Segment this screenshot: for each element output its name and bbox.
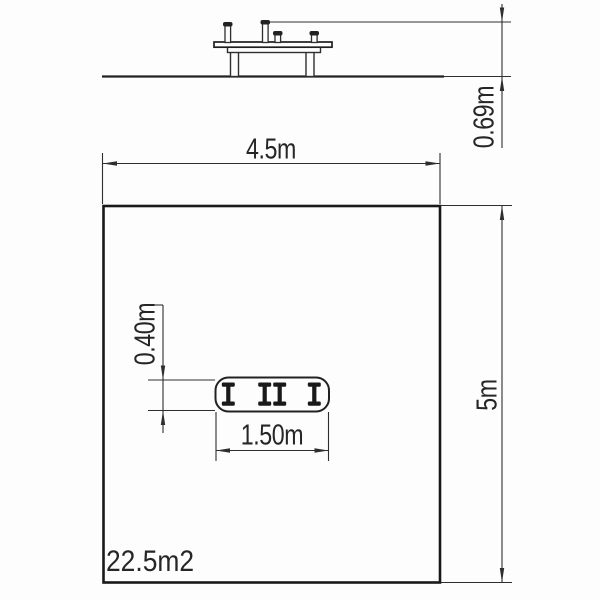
arrow-down-icon [500, 8, 504, 23]
plan-view [103, 153, 513, 583]
area-label: 22.5m2 [106, 547, 194, 577]
footprint-width-dimension-label: 0.40m [132, 303, 161, 365]
arrow-right-icon [315, 448, 329, 452]
post-1-cap [223, 22, 233, 27]
post-4-cap [310, 31, 320, 36]
arrow-right-icon [426, 161, 441, 165]
width-dimension-label: 4.5m [246, 136, 296, 165]
drawing-linework [0, 0, 600, 600]
elevation-view [102, 4, 511, 148]
post-2-cap [261, 20, 271, 25]
right-leg [306, 51, 314, 77]
arrow-left-icon [216, 448, 230, 452]
technical-drawing: 0.69m 4.5m 0.40m 1.50m 5m 22.5m2 [0, 0, 600, 600]
left-leg [231, 51, 239, 77]
arrow-down-icon [500, 568, 504, 583]
arrow-down-icon [161, 366, 165, 381]
post-1 [225, 26, 231, 43]
footprint-length-dimension-label: 1.50m [241, 422, 303, 451]
arrow-left-icon [103, 161, 118, 165]
post-2 [263, 24, 269, 43]
post-4 [312, 35, 318, 43]
post-3 [275, 35, 281, 43]
arrow-up-icon [500, 206, 504, 221]
post-3-cap [273, 31, 283, 36]
arrow-up-icon [161, 411, 165, 426]
height-dimension-label: 0.69m [471, 86, 500, 148]
depth-dimension-label: 5m [474, 379, 503, 410]
equipment-side-profile [214, 20, 332, 77]
